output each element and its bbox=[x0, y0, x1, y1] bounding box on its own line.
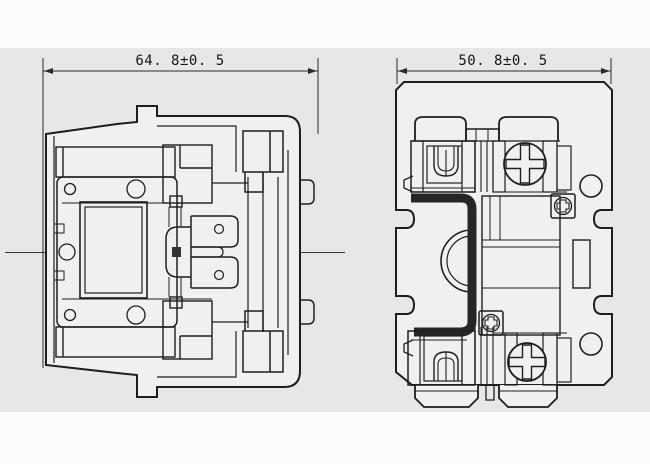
side-view-dimension-label: 64. 8±0. 5 bbox=[135, 53, 224, 69]
front-view-dimension-label: 50. 8±0. 5 bbox=[458, 53, 547, 69]
contactor-technical-drawing: 64. 8±0. 5 bbox=[0, 0, 650, 464]
side-view-drawing: 64. 8±0. 5 bbox=[5, 53, 345, 397]
front-view-dimension: 50. 8±0. 5 bbox=[397, 53, 611, 84]
front-view-drawing: 50. 8±0. 5 bbox=[396, 53, 612, 407]
mounting-feet bbox=[415, 385, 557, 407]
